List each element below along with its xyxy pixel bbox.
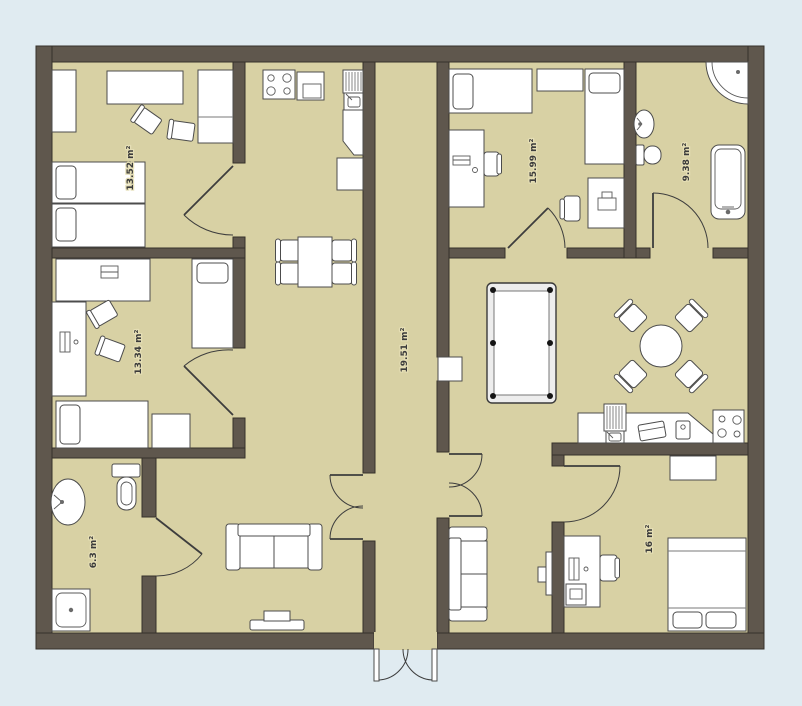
dining-chair [276, 262, 301, 285]
double-bed [668, 538, 746, 631]
wall-shelf [438, 357, 462, 381]
dining-chair [276, 239, 301, 262]
washbasin [51, 479, 85, 525]
wardrobe [670, 456, 716, 480]
desk [56, 259, 150, 301]
pillow [706, 612, 736, 628]
dining-table [298, 237, 332, 287]
round-table [640, 325, 682, 367]
sink-with-drainer [604, 404, 626, 443]
cabinet [337, 158, 363, 190]
small-appliance [676, 421, 690, 439]
pillow [197, 263, 228, 283]
oven-cabinet [297, 72, 324, 100]
shelf [537, 69, 583, 91]
area-label-bathroom-bottom-left: 6.3 m² [89, 536, 99, 568]
pillow [56, 208, 76, 241]
wardrobe [198, 70, 233, 143]
single-bed [449, 69, 532, 113]
single-bed [192, 259, 233, 348]
cabinet [52, 70, 76, 132]
desk [107, 71, 183, 104]
sofa [226, 524, 322, 570]
printer-stand [566, 584, 586, 605]
single-bed [56, 401, 148, 448]
single-bed [585, 69, 624, 164]
shower [52, 589, 90, 631]
dining-chair [332, 239, 357, 262]
desk-chair [484, 152, 502, 176]
sink-with-drainer [343, 70, 363, 110]
stove [263, 70, 295, 99]
desk-chair [600, 555, 620, 581]
desk-with-computer [449, 130, 484, 207]
desk-chair [560, 196, 580, 221]
area-label-bedroom-top-right: 15.99 m² [529, 138, 539, 183]
area-label-hallway: 19.51 m² [400, 327, 410, 372]
pillow [673, 612, 702, 628]
pool-table [487, 283, 556, 403]
pillow [589, 73, 620, 93]
washbasin [634, 110, 654, 138]
building: 13.52 m² 13.34 m² 6.3 m² 19.51 m² 15.99 … [36, 46, 764, 681]
desk-with-laptop [588, 178, 624, 228]
pillow [56, 166, 76, 199]
area-label-bedroom-bottom-right: 16 m² [645, 524, 655, 553]
desk-with-computer [564, 536, 600, 607]
dining-chair [332, 262, 357, 285]
area-label-bedroom-middle-left: 13.34 m² [134, 329, 144, 374]
bathtub [711, 145, 745, 219]
desk-with-computer [52, 302, 86, 396]
area-label-bathroom-top-right: 9.38 m² [682, 143, 692, 182]
area-label-bedroom-top-left: 13.52 m² [126, 145, 136, 190]
nightstand [152, 414, 190, 448]
floor-plan-canvas: 13.52 m² 13.34 m² 6.3 m² 19.51 m² 15.99 … [0, 0, 802, 706]
stove [713, 410, 744, 443]
sofa [449, 527, 487, 621]
pillow [453, 74, 473, 109]
single-bed [52, 204, 145, 247]
pillow [60, 405, 80, 444]
toilet [636, 145, 661, 165]
